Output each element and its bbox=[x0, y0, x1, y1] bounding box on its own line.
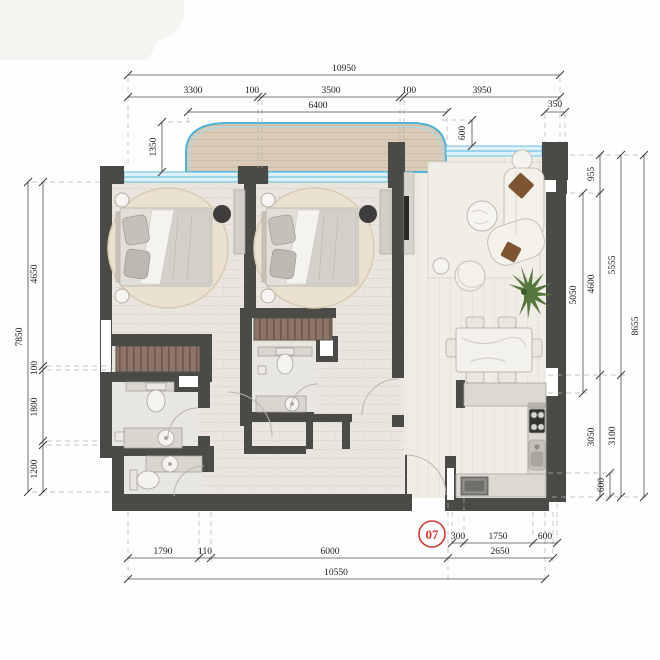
dim-label: 3300 bbox=[184, 86, 203, 96]
cooktop bbox=[529, 409, 545, 433]
dim-label: 1750 bbox=[489, 532, 508, 542]
side-table bbox=[115, 289, 129, 303]
dim-label: 4600 bbox=[587, 274, 597, 293]
stool bbox=[359, 205, 377, 223]
small-table bbox=[433, 258, 449, 274]
dim-label: 5050 bbox=[569, 285, 579, 304]
dim-label: 4650 bbox=[30, 264, 40, 283]
dim-label: 600 bbox=[597, 478, 607, 493]
chair bbox=[498, 317, 516, 328]
dim-label: 3950 bbox=[473, 86, 492, 96]
dining-table bbox=[456, 328, 532, 372]
tv-console bbox=[234, 190, 245, 254]
wardrobe bbox=[254, 318, 332, 340]
adjacent-unit-shadow bbox=[0, 0, 184, 60]
dim-label: 955 bbox=[587, 167, 597, 182]
dim-label: 600 bbox=[458, 126, 468, 141]
tv bbox=[404, 196, 409, 240]
sink bbox=[529, 440, 545, 470]
dim-label: 10950 bbox=[332, 64, 356, 74]
chair bbox=[466, 372, 484, 383]
side-table bbox=[115, 193, 129, 207]
unit-number: 07 bbox=[426, 527, 440, 542]
dim-label: 7850 bbox=[15, 327, 25, 346]
dim-label: 100 bbox=[30, 361, 40, 376]
dim-label: 100 bbox=[402, 86, 417, 96]
side-table bbox=[512, 150, 532, 170]
wardrobe bbox=[116, 346, 200, 372]
dim-label: 2650 bbox=[491, 547, 510, 557]
floor-plan: 10950 3300 100 3500 100 3950 6400 350 13… bbox=[0, 0, 660, 660]
dim-label: 8655 bbox=[631, 316, 641, 335]
bed bbox=[116, 208, 212, 286]
dim-label: 10550 bbox=[324, 568, 348, 578]
stool bbox=[213, 205, 231, 223]
dim-label: 3050 bbox=[587, 427, 597, 446]
dim-label: 300 bbox=[451, 532, 466, 542]
dim-label: 350 bbox=[548, 100, 563, 110]
dim-label: 5555 bbox=[608, 255, 618, 274]
dim-label: 110 bbox=[198, 547, 212, 557]
dim-label: 600 bbox=[538, 532, 553, 542]
dim-label: 3100 bbox=[608, 426, 618, 445]
dim-label: 100 bbox=[245, 86, 260, 96]
chair bbox=[531, 339, 542, 357]
dim-label: 1790 bbox=[154, 547, 173, 557]
unit-number-badge: 07 bbox=[419, 521, 445, 547]
balcony bbox=[186, 123, 446, 172]
tv-console bbox=[380, 190, 391, 254]
side-table bbox=[261, 289, 275, 303]
chair bbox=[466, 317, 484, 328]
dim-label: 1350 bbox=[149, 137, 159, 156]
dim-label: 1200 bbox=[30, 459, 40, 478]
side-table bbox=[261, 193, 275, 207]
dim-label: 6000 bbox=[321, 547, 340, 557]
chair bbox=[498, 372, 516, 383]
coffee-table bbox=[467, 201, 497, 231]
chair bbox=[446, 339, 457, 357]
armchair bbox=[455, 261, 485, 291]
dim-label: 6400 bbox=[309, 101, 328, 111]
dim-label: 3500 bbox=[322, 86, 341, 96]
bed bbox=[262, 208, 358, 286]
dim-label: 1800 bbox=[30, 397, 40, 416]
floor-plan-sheet: 10950 3300 100 3500 100 3950 6400 350 13… bbox=[0, 0, 660, 660]
